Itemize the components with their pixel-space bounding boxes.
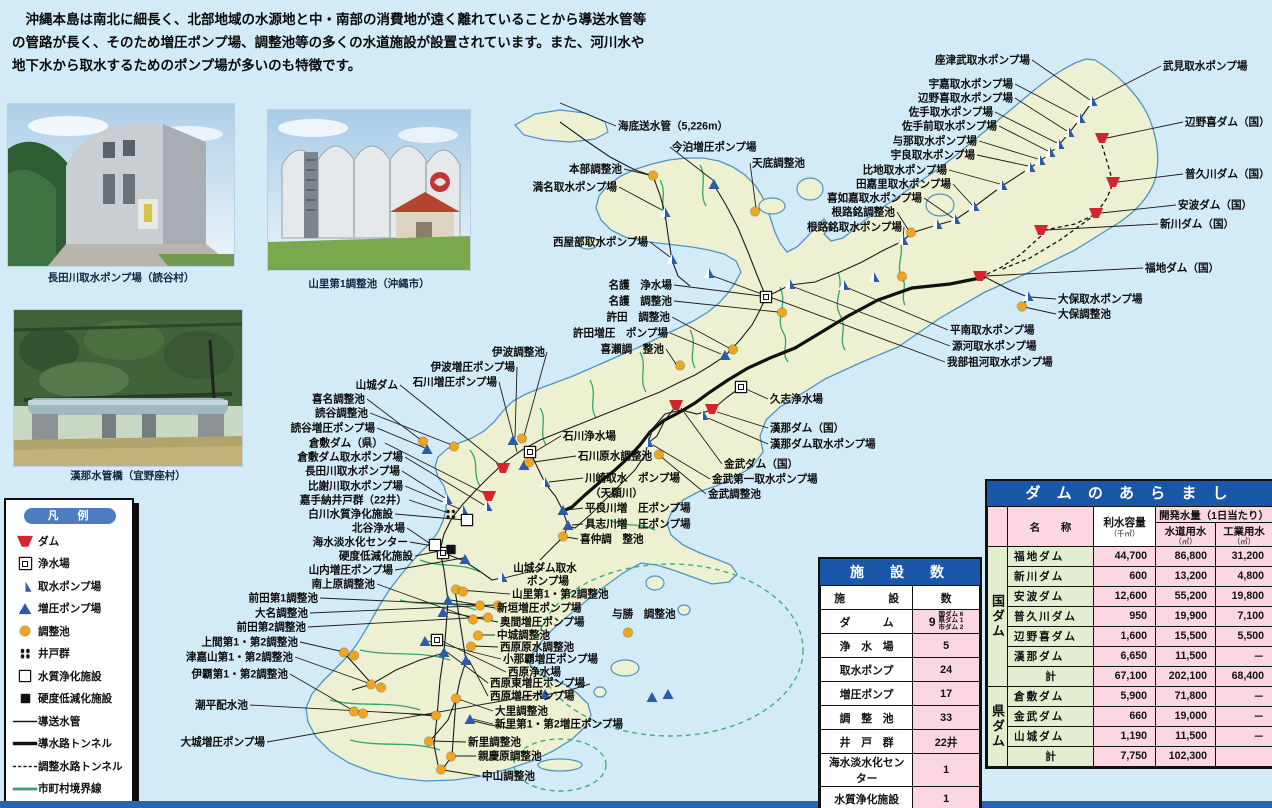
map-label: 前田第1調整池 [249,591,318,606]
wq-symbol [429,539,441,551]
map-label: 伊覇第1・第2調整池 [191,667,288,682]
boost-symbol [420,636,431,646]
map-label: 喜瀬調 整池 [600,342,664,357]
dam-count-breakdown: 国ダム 6県ダム 1市ダム 2 [939,612,964,632]
res-marker [676,357,685,375]
facility-label: 調 整 池 [821,706,913,730]
res-marker [447,748,456,766]
dam-name: 辺野喜ダム [1008,626,1094,646]
map-label: 許田 調整池 [606,310,670,325]
res-symbol [447,752,456,761]
map-label: 潮平配水池 [195,698,248,713]
dam-value: 7,100 [1216,606,1272,626]
map-label: 辺野喜ダム（国） [1185,115,1270,130]
map-label: 源河取水ポンプ場 [952,339,1036,354]
dam-table-corner [988,507,1008,547]
boost-symbol [663,689,674,699]
map-label: 福地ダム（国） [1145,261,1219,276]
map-label: 新川ダム（国） [1160,217,1234,232]
res-marker [377,679,386,697]
intake-symbol [1064,127,1075,137]
map-label: 硬度低減化施設 [339,549,413,564]
dam-name: 福地ダム [1008,546,1094,566]
dam-total-row: 計7,750102,300 [988,746,1272,766]
total-label: 計 [1008,746,1094,766]
boost-marker [438,604,449,622]
intake-symbol [442,494,453,504]
intake-marker [1035,152,1046,170]
map-label: 宇良取水ポンプ場 [891,148,975,163]
res-marker [459,583,468,601]
dam-table-row: 金武ダム66019,000－ [988,706,1272,726]
map-label: 今泊増圧ポンプ場 [672,140,756,155]
dev-water-header: 開発水量（1日当たり） [1156,507,1272,523]
map-label: 安波ダム（国） [1178,198,1252,213]
facility-header-row: 施 設数 [821,586,980,610]
map-label: 比謝川取水ポンプ場 [308,479,403,494]
dam-symbol [1095,133,1109,143]
facility-label: 水質浄化施設 [821,787,913,808]
dam-count-detail: 9国ダム 6県ダム 1市ダム 2 [916,612,976,632]
dam-value: 660 [1094,706,1156,726]
table-row: 井 戸 群22井 [821,730,980,754]
map-label: 佐手前取水ポンプ場 [902,119,997,134]
dam-table-row: 安波ダム12,60055,20019,800 [988,586,1272,606]
map-label: 親慶原調整池 [478,749,542,764]
dam-name: 新川ダム [1008,566,1094,586]
dam-marker [973,268,987,286]
intake-marker [785,276,796,294]
res-symbol [484,613,493,622]
dam-count: 9 [929,615,936,629]
intake-symbol [1025,162,1036,172]
res-symbol [432,711,441,720]
dam-marker [1034,222,1048,240]
intake-symbol [660,207,671,217]
intake-symbol [950,214,961,224]
map-label: （天願川） [590,486,643,501]
res-marker [729,341,738,359]
intake-symbol [482,501,493,511]
map-label: 山里第1・第2調整池 [512,587,609,602]
map-label: 宇嘉取水ポンプ場 [929,77,1013,92]
intake-symbol [839,280,850,290]
facility-label: 海水淡水化センター [821,754,913,787]
dam-marker [496,460,510,478]
dam-value: 950 [1094,606,1156,626]
total-label: 計 [1008,666,1094,686]
map-label: 読谷調整池 [315,406,368,421]
intake-marker [950,211,961,229]
total-value: 202,100 [1156,666,1216,686]
table-row: 水質浄化施設1 [821,787,980,808]
map-label: 満名取水ポンプ場 [533,180,617,195]
intake-symbol [698,410,709,420]
intake-marker [660,204,671,222]
intake-marker [1045,144,1056,162]
dam-value: 19,800 [1216,586,1272,606]
purif-symbol [735,381,747,393]
capacity-header: 利水容量（千㎥） [1094,507,1156,547]
facility-label: 井 戸 群 [821,730,913,754]
intake-marker [1087,93,1098,111]
table-row: 取水ポンプ24 [821,658,980,682]
res-symbol [649,171,658,180]
wq-marker [429,538,441,556]
map-label: 喜仲調 整池 [580,532,644,547]
res-marker [452,690,461,708]
boost-marker [460,551,471,569]
intake-marker [997,177,1008,195]
res-marker [450,438,459,456]
wq-symbol [461,514,473,526]
map-label: 大保調整池 [1058,307,1111,322]
dam-value: 1,190 [1094,726,1156,746]
facility-col-header: 施 設 [821,586,913,610]
map-label: 佐手取水ポンプ場 [909,105,993,120]
map-label: 漢那ダム（国） [770,421,844,436]
res-marker [484,609,493,627]
boost-marker [420,633,431,651]
res-symbol [469,615,478,624]
res-marker [425,733,434,751]
dam-value: 19,000 [1156,706,1216,726]
dam-value: 15,500 [1156,626,1216,646]
res-symbol [419,437,428,446]
dam-value: 31,200 [1216,546,1272,566]
tap-water-header: 水道用水（㎥） [1156,523,1216,547]
dam-value: 11,500 [1156,726,1216,746]
intake-marker [1075,110,1086,128]
map-label: 伊波増圧ポンプ場 [431,360,515,375]
res-marker [432,707,441,725]
dam-value: 13,200 [1156,566,1216,586]
intake-marker [667,251,678,269]
res-symbol [450,442,459,451]
res-symbol [340,648,349,657]
dam-table-row: 山城ダム1,19011,500－ [988,726,1272,746]
res-symbol [655,450,664,459]
total-value: 102,300 [1156,746,1216,766]
map-label: 根路銘調整池 [831,205,895,220]
res-marker [898,268,907,286]
res-marker [359,705,368,723]
dam-value: 19,900 [1156,606,1216,626]
facility-value: 22井 [913,730,980,754]
facility-value: 24 [913,658,980,682]
total-value: 7,750 [1094,746,1156,766]
facility-label: 増圧ポンプ [821,682,913,706]
map-label: 山城ダム [356,378,398,393]
dam-value: 11,500 [1156,646,1216,666]
map-label: 与那取水ポンプ場 [893,134,977,149]
res-marker [559,528,568,546]
boost-symbol [709,179,720,189]
map-label: 上間第1・第2調整池 [201,635,298,650]
table-row: 調 整 池33 [821,706,980,730]
res-symbol [676,361,685,370]
dam-value: 4,800 [1216,566,1272,586]
res-marker [649,167,658,185]
map-label: 大名調整池 [255,606,308,621]
map-label: 座津武取水ポンプ場 [935,53,1030,68]
dam-table-row: 国ダム福地ダム44,70086,80031,200 [988,546,1272,566]
intake-symbol [1045,147,1056,157]
dam-group-label: 国ダム [988,546,1008,686]
dam-value: 71,800 [1156,686,1216,706]
res-symbol [751,207,760,216]
map-label: 名護 調整池 [608,294,672,309]
map-label: 根路銘取水ポンプ場 [807,220,902,235]
table-row: 海水淡水化センター1 [821,754,980,787]
facility-value: 9国ダム 6県ダム 1市ダム 2 [913,610,980,634]
dam-value: 1,600 [1094,626,1156,646]
dam-marker [1089,205,1103,223]
map-label: 大城増圧ポンプ場 [181,735,265,750]
intake-marker [497,569,508,587]
intake-symbol [540,477,551,487]
dam-value: － [1216,646,1272,666]
wq-marker [461,513,473,531]
intake-marker [482,498,493,516]
dam-name: 倉敷ダム [1008,686,1094,706]
dam-name: 漢那ダム [1008,646,1094,666]
dam-value: － [1216,706,1272,726]
res-marker [367,676,376,694]
map-label: 倉敷ダム取水ポンプ場 [297,450,403,465]
map-label: 西屋部取水ポンプ場 [553,235,648,250]
facility-value: 1 [913,754,980,787]
res-marker [437,761,446,779]
facility-value: 1 [913,787,980,808]
map-label: 中山調整池 [482,769,535,784]
hard-marker [447,541,456,559]
intake-marker [698,407,709,425]
facility-table-title: 施 設 数 [820,559,980,585]
res-symbol [359,709,368,718]
intake-symbol [1087,96,1098,106]
facility-count-table: 施 設 数 施 設数ダ ム9国ダム 6県ダム 1市ダム 2浄 水 場5取水ポンプ… [818,557,982,808]
dam-name: 山城ダム [1008,726,1094,746]
intake-symbol [969,201,980,211]
map-label: 石川浄水場 [563,429,616,444]
map-label: 天底調整池 [752,156,805,171]
map-label: 新垣増圧ポンプ場 [497,601,581,616]
table-row-dam: ダ ム9国ダム 6県ダム 1市ダム 2 [821,610,980,634]
table-row: 増圧ポンプ17 [821,682,980,706]
map-label: 金武第一取水ポンプ場 [712,472,818,487]
res-symbol [350,707,359,716]
map-label: 嘉手納井戸群（22井） [300,493,407,508]
map-label: 漢那ダム取水ポンプ場 [770,437,876,452]
res-marker [624,624,633,642]
map-label: 新里調整池 [468,735,521,750]
dam-value: 12,600 [1094,586,1156,606]
map-label: 金武調整池 [708,487,761,502]
well-marker [447,506,456,524]
intake-marker [839,277,850,295]
boost-marker [663,686,674,704]
intake-symbol [932,219,943,229]
map-label: 比地取水ポンプ場 [863,163,947,178]
dam-value: 44,700 [1094,546,1156,566]
dam-value: 5,900 [1094,686,1156,706]
total-value [1216,746,1272,766]
purif-marker [760,291,772,303]
dam-value: － [1216,726,1272,746]
boost-marker [465,711,476,729]
boost-symbol [465,714,476,724]
boost-symbol [439,647,450,657]
map-label: 金武ダム（国） [724,457,798,472]
dam-total-row: 計67,100202,10068,400 [988,666,1272,686]
map-label: 海底送水管（5,226m） [618,119,728,134]
dam-marker [1106,174,1120,192]
dam-name-header: 名 称 [1008,507,1094,547]
dam-value: 6,650 [1094,646,1156,666]
res-symbol [452,694,461,703]
map-label: 石川原水調整池 [578,449,652,464]
map-label: 南上原調整池 [311,577,375,592]
res-symbol [624,628,633,637]
res-symbol [467,642,476,651]
res-symbol [1018,302,1027,311]
total-value: 68,400 [1216,666,1272,686]
intake-marker [969,198,980,216]
dam-overview-table: ダ ム の あ ら ま し 名 称 利水容量（千㎥） 開発水量（1日当たり） 水… [985,479,1272,769]
dam-symbol [669,400,683,410]
map-label: 前田第2調整池 [237,620,306,635]
res-symbol [425,737,434,746]
res-marker [419,433,428,451]
res-marker [751,203,760,221]
map-label: 津嘉山第1・第2調整池 [186,650,293,665]
map-label: 平南取水ポンプ場 [950,323,1034,338]
boost-symbol [558,505,569,515]
map-label: 辺野喜取水ポンプ場 [918,91,1013,106]
map-label: 北谷浄水場 [352,521,405,536]
map-label: 許田増圧 ポンプ場 [573,326,668,341]
map-label: 倉敷ダム（県） [309,436,383,451]
intake-symbol [997,180,1008,190]
map-label: 平良川増 圧ポンプ場 [585,501,691,516]
res-marker [907,224,916,242]
dam-marker [1095,130,1109,148]
dam-table-row: 漢那ダム6,65011,500－ [988,646,1272,666]
intake-marker [704,265,715,283]
dam-name: 安波ダム [1008,586,1094,606]
boost-symbol [647,692,658,702]
dam-symbol [1106,177,1120,187]
boost-marker [709,176,720,194]
map-label: 喜如嘉取水ポンプ場 [827,191,922,206]
well-symbol [447,510,456,519]
res-symbol [778,308,787,317]
boost-symbol [438,607,449,617]
res-marker [467,638,476,656]
dam-sub-line: 市ダム 2 [939,625,964,632]
map-label: 読谷増圧ポンプ場 [291,421,375,436]
dam-value: 55,200 [1156,586,1216,606]
purif-marker [735,381,747,393]
facility-label: 取水ポンプ [821,658,913,682]
intake-symbol [785,279,796,289]
map-label: 大保取水ポンプ場 [1058,292,1142,307]
res-marker [518,430,527,448]
res-symbol [898,272,907,281]
res-symbol [559,532,568,541]
dam-value: 86,800 [1156,546,1216,566]
res-marker [525,454,534,472]
res-marker [350,703,359,721]
dam-symbol [973,271,987,281]
dam-table-row: 県ダム倉敷ダム5,90071,800－ [988,686,1272,706]
res-marker [778,304,787,322]
res-symbol [377,683,386,692]
purif-symbol [760,291,772,303]
res-symbol [367,680,376,689]
intake-marker [932,216,943,234]
dam-value: 600 [1094,566,1156,586]
map-label: 喜名調整池 [312,392,365,407]
map-label: 川崎取水 ポンプ場 [585,471,680,486]
map-label: 白川水質浄化施設 [308,507,393,522]
intake-marker [1064,124,1075,142]
page: 沖縄本島は南北に細長く、北部地域の水源地と中・南部の消費地が遠く離れていることか… [0,0,1272,808]
intake-marker [869,269,880,287]
count-col-header: 数 [913,586,980,610]
boost-symbol [461,655,472,665]
facility-value: 17 [913,682,980,706]
dam-group-label: 県ダム [988,686,1008,766]
boost-marker [647,689,658,707]
map-label: 久志浄水場 [770,392,823,407]
intake-symbol [643,437,654,447]
map-label: 石川増圧ポンプ場 [413,375,497,390]
table-row: 浄 水 場5 [821,634,980,658]
map-label: 与勝 調整池 [612,607,676,622]
intake-symbol [869,272,880,282]
intake-symbol [1075,113,1086,123]
dam-value: 5,500 [1216,626,1272,646]
intake-symbol [704,268,715,278]
res-marker [1018,298,1027,316]
facility-label: 浄 水 場 [821,634,913,658]
res-marker [340,644,349,662]
dam-table-row: 辺野喜ダム1,60015,5005,500 [988,626,1272,646]
res-marker [350,647,359,665]
res-symbol [350,651,359,660]
map-label: 田嘉里取水ポンプ場 [856,177,951,192]
map-label: 我部祖河取水ポンプ場 [947,355,1053,370]
facility-value: 33 [913,706,980,730]
dam-table-title: ダ ム の あ ら ま し [987,481,1272,506]
dam-value: － [1216,686,1272,706]
facility-label: ダ ム [821,610,913,634]
intake-symbol [1035,155,1046,165]
total-value: 67,100 [1094,666,1156,686]
intake-marker [540,474,551,492]
map-label: 新里第1・第2増圧ポンプ場 [495,717,623,732]
res-symbol [907,228,916,237]
hard-symbol [447,545,456,554]
intake-marker [1025,159,1036,177]
dam-symbol [496,463,510,473]
map-label: 長田川取水ポンプ場 [305,464,400,479]
res-symbol [729,345,738,354]
res-marker [655,446,664,464]
map-label: 名護 浄水場 [608,278,672,293]
